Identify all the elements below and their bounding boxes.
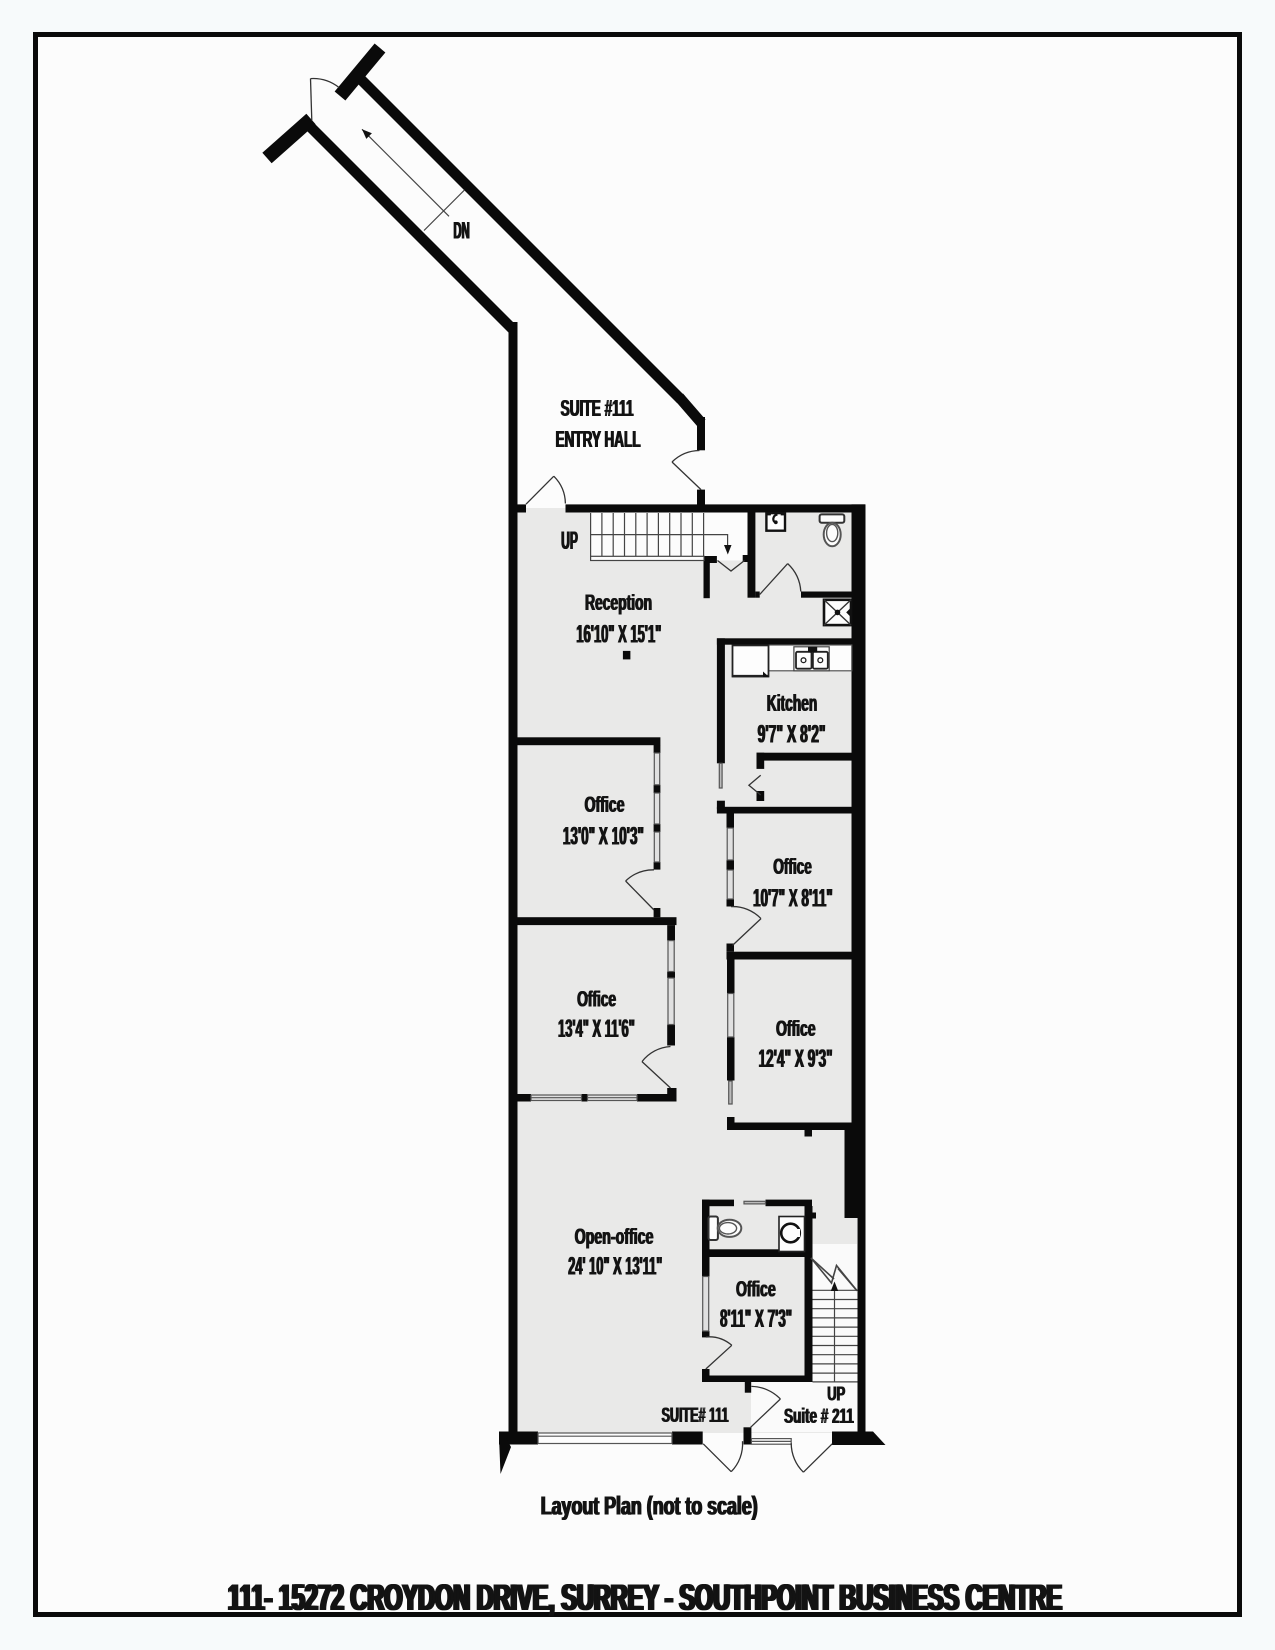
- svg-text:Office: Office: [777, 1016, 817, 1041]
- svg-text:10'7" X 8'11": 10'7" X 8'11": [754, 884, 834, 912]
- svg-text:UP: UP: [828, 1382, 846, 1405]
- svg-text:SUITE# 111: SUITE# 111: [662, 1404, 729, 1427]
- svg-text:12'4" X 9'3": 12'4" X 9'3": [759, 1045, 833, 1073]
- svg-text:8'11" X 7'3": 8'11" X 7'3": [721, 1305, 793, 1333]
- svg-text:24' 10" X 13'11": 24' 10" X 13'11": [569, 1252, 663, 1280]
- svg-text:Office: Office: [737, 1277, 777, 1302]
- svg-text:Kitchen: Kitchen: [767, 690, 818, 716]
- svg-text:13'0" X 10'3": 13'0" X 10'3": [563, 823, 644, 851]
- svg-text:ENTRY HALL: ENTRY HALL: [556, 426, 641, 452]
- svg-text:Office: Office: [585, 792, 625, 817]
- svg-text:Reception: Reception: [586, 590, 653, 615]
- svg-text:Office: Office: [578, 986, 617, 1011]
- svg-text:9'7" X 8'2": 9'7" X 8'2": [758, 721, 826, 749]
- svg-text:Suite # 211: Suite # 211: [785, 1405, 855, 1428]
- svg-text:Office: Office: [774, 854, 813, 879]
- svg-text:111- 15272 CROYDON DRIVE, SURR: 111- 15272 CROYDON DRIVE, SURREY - SOUTH…: [230, 1576, 1064, 1618]
- svg-text:Layout Plan (not to scale): Layout Plan (not to scale): [542, 1491, 759, 1521]
- svg-text:UP: UP: [562, 527, 579, 555]
- svg-text:DN: DN: [454, 217, 470, 244]
- svg-text:Open-office: Open-office: [575, 1224, 654, 1249]
- svg-text:SUITE #111: SUITE #111: [561, 395, 634, 421]
- svg-text:13'4" X 11'6": 13'4" X 11'6": [559, 1015, 636, 1043]
- svg-text:16'10" X 15'1": 16'10" X 15'1": [577, 621, 662, 649]
